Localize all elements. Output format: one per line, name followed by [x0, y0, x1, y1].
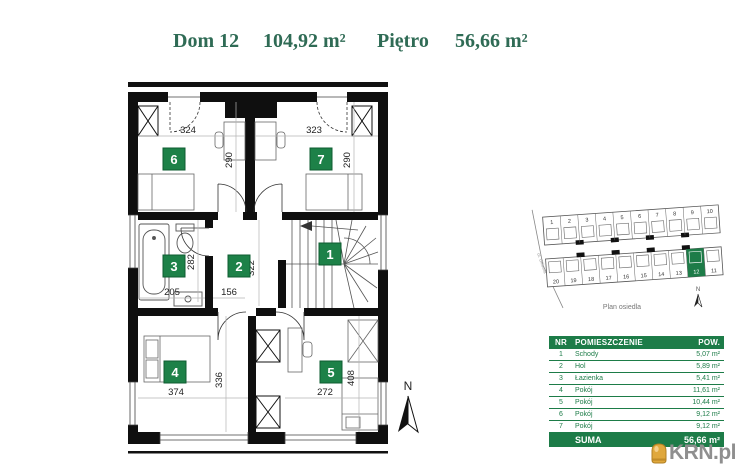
dim-label: 374 — [168, 387, 184, 398]
table-row: 5Pokój10,44 m² — [549, 397, 724, 409]
room-badge-3: 3 — [163, 255, 185, 277]
floor-label: Piętro — [377, 30, 429, 53]
room-badge-label: 7 — [317, 152, 324, 167]
site-house-number: 14 — [658, 272, 665, 278]
table-row: 1Schody5,07 m² — [549, 349, 724, 361]
table-row: 7Pokój9,12 m² — [549, 421, 724, 433]
site-house-number: 4 — [603, 216, 606, 222]
header-nr: NR — [549, 338, 573, 347]
dim-label: 156 — [221, 287, 237, 298]
room-badge-label: 1 — [326, 247, 333, 262]
room-badge-7: 7 — [310, 148, 332, 170]
table-row: 3Łazienka5,41 m² — [549, 373, 724, 385]
room-badge-label: 2 — [235, 259, 242, 274]
dim-label: 408 — [346, 370, 357, 386]
site-house-number: 16 — [623, 274, 630, 280]
site-house-number: 3 — [585, 217, 588, 223]
dim-label: 272 — [317, 387, 333, 398]
dim-label: 324 — [180, 125, 196, 136]
dim-label: 205 — [164, 287, 180, 298]
table-row: 4Pokój11,61 m² — [549, 385, 724, 397]
room-badge-label: 6 — [170, 152, 177, 167]
site-house-number: 15 — [641, 273, 648, 279]
site-house-number: 19 — [570, 278, 577, 284]
site-plan: ul. Główna 12345678910 20191817161514131… — [527, 203, 737, 321]
floor-area: 56,66 m² — [455, 30, 528, 53]
site-house-number: 1 — [550, 220, 553, 226]
house-label: Dom 12 — [173, 30, 239, 53]
site-plan-caption: Plan osiedla — [603, 304, 641, 311]
house-area: 104,92 m² — [263, 30, 346, 53]
room-table-header: NR POMIESZCZENIE POW. — [549, 336, 724, 349]
site-house-number: 10 — [707, 209, 714, 215]
dim-label: 336 — [214, 372, 225, 388]
site-house-number: 2 — [568, 219, 571, 225]
floor-plan: 324 323 290 290 282 205 156 322 374 336 … — [122, 80, 432, 465]
header-room: POMIESZCZENIE — [573, 338, 670, 347]
room-badge-4: 4 — [164, 361, 186, 383]
site-house-number: 8 — [673, 211, 676, 217]
room-badge-6: 6 — [163, 148, 185, 170]
room-badge-2: 2 — [228, 255, 250, 277]
table-row: 6Pokój9,12 m² — [549, 409, 724, 421]
site-house-number: 9 — [691, 210, 694, 216]
dim-label: 290 — [342, 152, 353, 168]
site-house-number: 11 — [711, 268, 717, 274]
site-house-number: 12 — [693, 269, 700, 275]
north-label: N — [404, 379, 413, 393]
site-house-number: 6 — [638, 214, 641, 220]
site-house-number: 20 — [553, 279, 560, 285]
dim-label: 290 — [224, 152, 235, 168]
north-arrow-icon: N — [398, 379, 418, 432]
room-table-rows: 1Schody5,07 m²2Hol5,89 m²3Łazienka5,41 m… — [549, 349, 724, 433]
header-area: POW. — [670, 338, 724, 347]
room-badge-label: 3 — [170, 259, 177, 274]
krn-logo: KRN.pl — [649, 440, 736, 466]
room-badge-1: 1 — [319, 243, 341, 265]
dim-label: 323 — [306, 125, 322, 136]
dim-label: 282 — [186, 254, 197, 270]
krn-logo-text: KRN.pl — [669, 440, 736, 466]
site-house-number: 17 — [605, 275, 612, 281]
site-house-number: 13 — [676, 271, 683, 277]
floorplan-page: Dom 12 104,92 m² Piętro 56,66 m² — [0, 0, 740, 472]
site-house-number: 7 — [655, 213, 658, 219]
room-badge-5: 5 — [320, 361, 342, 383]
room-table: NR POMIESZCZENIE POW. 1Schody5,07 m²2Hol… — [549, 336, 724, 447]
room-badge-label: 4 — [171, 365, 179, 380]
room-badge-label: 5 — [327, 365, 334, 380]
site-house-number: 18 — [588, 277, 595, 283]
site-house-number: 5 — [620, 215, 623, 221]
krn-house-icon — [649, 440, 669, 466]
north-label: N — [696, 287, 700, 293]
site-north-arrow-icon: N — [694, 287, 702, 307]
doors — [170, 102, 347, 340]
table-row: 2Hol5,89 m² — [549, 361, 724, 373]
